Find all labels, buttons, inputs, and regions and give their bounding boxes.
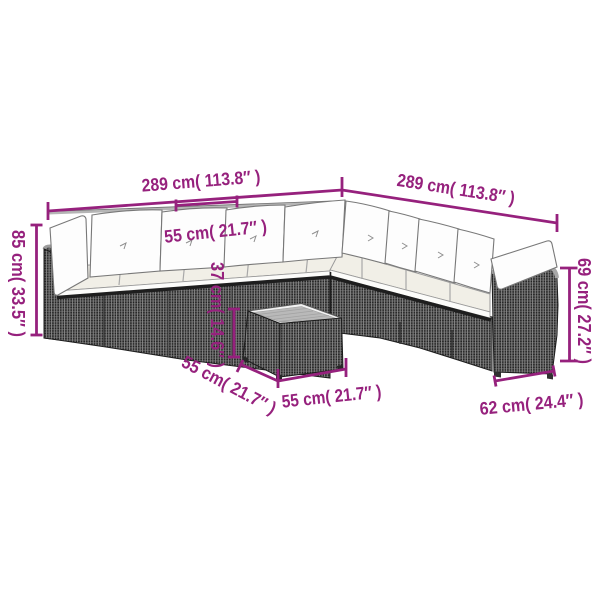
svg-text:37 cm( 14.6″ ): 37 cm( 14.6″ ) (207, 262, 227, 368)
svg-text:69 cm( 27.2″ ): 69 cm( 27.2″ ) (574, 258, 594, 364)
svg-text:85 cm( 33.5″ ): 85 cm( 33.5″ ) (8, 230, 28, 337)
